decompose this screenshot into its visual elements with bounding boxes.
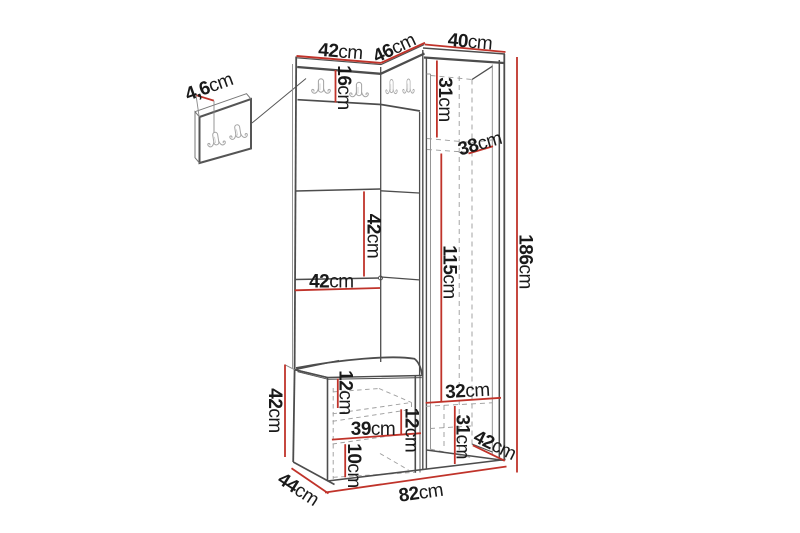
svg-text:42cm: 42cm xyxy=(264,388,285,432)
svg-text:10cm: 10cm xyxy=(343,443,364,487)
svg-text:31cm: 31cm xyxy=(434,77,455,121)
svg-text:42cm: 42cm xyxy=(363,214,384,258)
svg-text:12cm: 12cm xyxy=(400,408,421,452)
svg-text:42cm: 42cm xyxy=(317,40,363,64)
svg-text:42cm: 42cm xyxy=(309,271,353,292)
svg-text:115cm: 115cm xyxy=(439,245,460,298)
svg-text:16cm: 16cm xyxy=(333,65,354,109)
svg-text:186cm: 186cm xyxy=(514,234,535,289)
svg-text:12cm: 12cm xyxy=(335,370,356,414)
svg-text:40cm: 40cm xyxy=(447,30,493,55)
svg-text:31cm: 31cm xyxy=(452,414,473,458)
svg-text:32cm: 32cm xyxy=(445,380,491,403)
svg-text:39cm: 39cm xyxy=(351,419,395,440)
